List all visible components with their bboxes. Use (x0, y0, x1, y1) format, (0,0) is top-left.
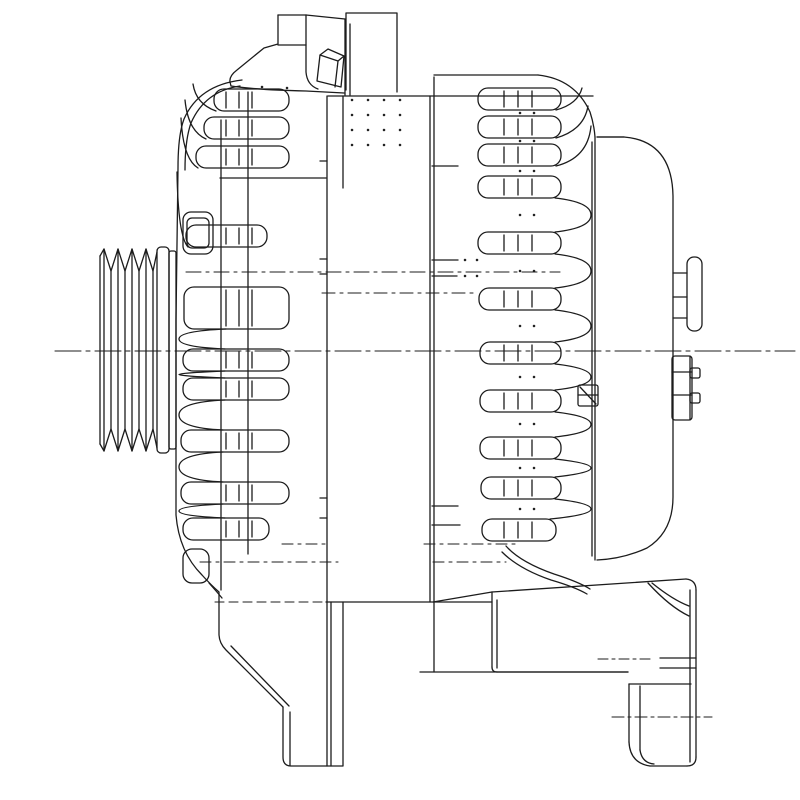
vent-fin-bar (478, 176, 561, 198)
bracket-corner-bottom-right (687, 757, 696, 766)
hidden-edge-dot (464, 259, 466, 261)
vent-fin-bar (204, 117, 289, 139)
axis-centerlines (55, 272, 795, 717)
hidden-edge-dot (533, 508, 535, 510)
hidden-edge-dot (519, 170, 521, 172)
lug-inner-edge (306, 15, 318, 89)
fin-hairpin-curve (179, 452, 223, 482)
edge-line (492, 579, 686, 592)
hidden-edge-dot (367, 144, 369, 146)
hidden-edge-dot (533, 423, 535, 425)
vent-fin-bar (480, 342, 561, 364)
hidden-edge-dot (383, 129, 385, 131)
front-housing-left-outline (176, 80, 283, 707)
pulley-groove-profile-top (100, 249, 157, 271)
pulley-hub-plate (169, 251, 176, 449)
hidden-edge-dot (519, 376, 521, 378)
bracket-corner-top-right (686, 579, 696, 590)
bracket-corner-bottom-left (492, 667, 497, 672)
bracket-foot-inner-curve (640, 750, 654, 764)
rear-swoosh-outer (506, 546, 590, 589)
hidden-edge-dot (399, 129, 401, 131)
vent-fin-bar (196, 146, 289, 168)
hidden-edge-dot (383, 144, 385, 146)
fin-hairpin-curve (179, 504, 225, 518)
vent-fin-bar (183, 349, 289, 371)
bracket-gusset-b (652, 583, 689, 606)
terminal-nut (672, 356, 692, 420)
bracket-gusset-a (648, 583, 689, 616)
vent-fin-bar (183, 378, 289, 400)
hidden-edge-dot (533, 325, 535, 327)
front-foot-outline (283, 602, 343, 766)
vent-fin-bar (480, 390, 561, 412)
fin-hairpin-curve (555, 412, 591, 437)
hidden-edge-dot (351, 144, 353, 146)
fin-hairpin-curve (555, 459, 591, 477)
rear-swoosh-inner (502, 552, 587, 594)
fin-hairpin-curve (555, 254, 591, 288)
hidden-edge-dot (519, 423, 521, 425)
edge-line (231, 646, 289, 706)
hidden-edge-dot (351, 114, 353, 116)
pulley-flange (157, 247, 169, 453)
hidden-edge-dot (367, 129, 369, 131)
fin-hairpin-curve (179, 329, 226, 349)
hidden-edge-dot (533, 376, 535, 378)
fin-hairpin-curve (555, 310, 591, 342)
lug-rear-ear (346, 13, 397, 92)
hidden-edge-dot (399, 114, 401, 116)
part-outlines (100, 13, 696, 766)
rear-fin-fan-3 (556, 126, 591, 166)
hidden-edge-dot (286, 87, 288, 89)
hidden-edge-dot (367, 114, 369, 116)
vent-fin-bar (184, 287, 289, 329)
hidden-edge-dot (476, 275, 478, 277)
hidden-edge-dot (399, 99, 401, 101)
hidden-edge-dot (533, 270, 535, 272)
technical-drawing-canvas (0, 0, 800, 800)
hidden-edge-dot (533, 467, 535, 469)
fin-hairpin-curve (555, 198, 591, 232)
hidden-edge-dot (519, 467, 521, 469)
fin-hairpin-curve (179, 371, 225, 378)
vent-fin-bar (181, 430, 289, 452)
hidden-edge-dot (464, 275, 466, 277)
front-boss-pad-inner (187, 218, 209, 248)
hidden-edge-dot (533, 112, 535, 114)
hidden-edge-dot (476, 259, 478, 261)
hidden-edge-dot (383, 99, 385, 101)
vent-fin-bar (478, 116, 561, 138)
hidden-edge-dot (351, 129, 353, 131)
hidden-edge-dot (519, 270, 521, 272)
vent-fin-bar (478, 144, 561, 166)
hidden-edge-dot (383, 114, 385, 116)
terminal-stud (687, 257, 702, 331)
vent-fin-bar (181, 482, 289, 504)
fin-hairpin-curve (550, 499, 591, 519)
hidden-edge-dot (533, 140, 535, 142)
fin-hairpin-curve (179, 400, 225, 430)
hidden-edge-dot (533, 214, 535, 216)
hidden-edge-dot (533, 170, 535, 172)
hidden-edge-dot (351, 99, 353, 101)
hidden-edge-dot (519, 140, 521, 142)
rear-fin-fan-1 (556, 88, 582, 110)
vent-fin-bar (478, 232, 561, 254)
edge-line (306, 15, 345, 19)
edge-line (433, 592, 492, 602)
vent-fin-bar (481, 477, 561, 499)
fin-hairpin-curve (555, 364, 591, 390)
hidden-edge-dot (261, 86, 263, 88)
vent-fin-bar (479, 288, 561, 310)
hidden-edge-dot (399, 144, 401, 146)
front-bottom-slot-curve (209, 583, 222, 598)
hidden-edge-dots (261, 86, 535, 510)
hidden-edge-dot (519, 214, 521, 216)
lug-left-outline (230, 15, 278, 86)
hidden-edge-dot (367, 99, 369, 101)
hidden-edge-dot (519, 325, 521, 327)
rear-cover-outline (597, 137, 673, 560)
front-vent-fins (179, 89, 289, 540)
rear-vent-fins (478, 88, 591, 541)
vent-fin-bar (478, 88, 561, 110)
vent-fin-bar (482, 519, 556, 541)
vent-fin-bar (480, 437, 561, 459)
hidden-edge-dot (519, 112, 521, 114)
alternator-side-view-drawing (0, 0, 800, 800)
pulley-groove-profile-bottom (100, 429, 157, 451)
hidden-edge-dot (519, 508, 521, 510)
